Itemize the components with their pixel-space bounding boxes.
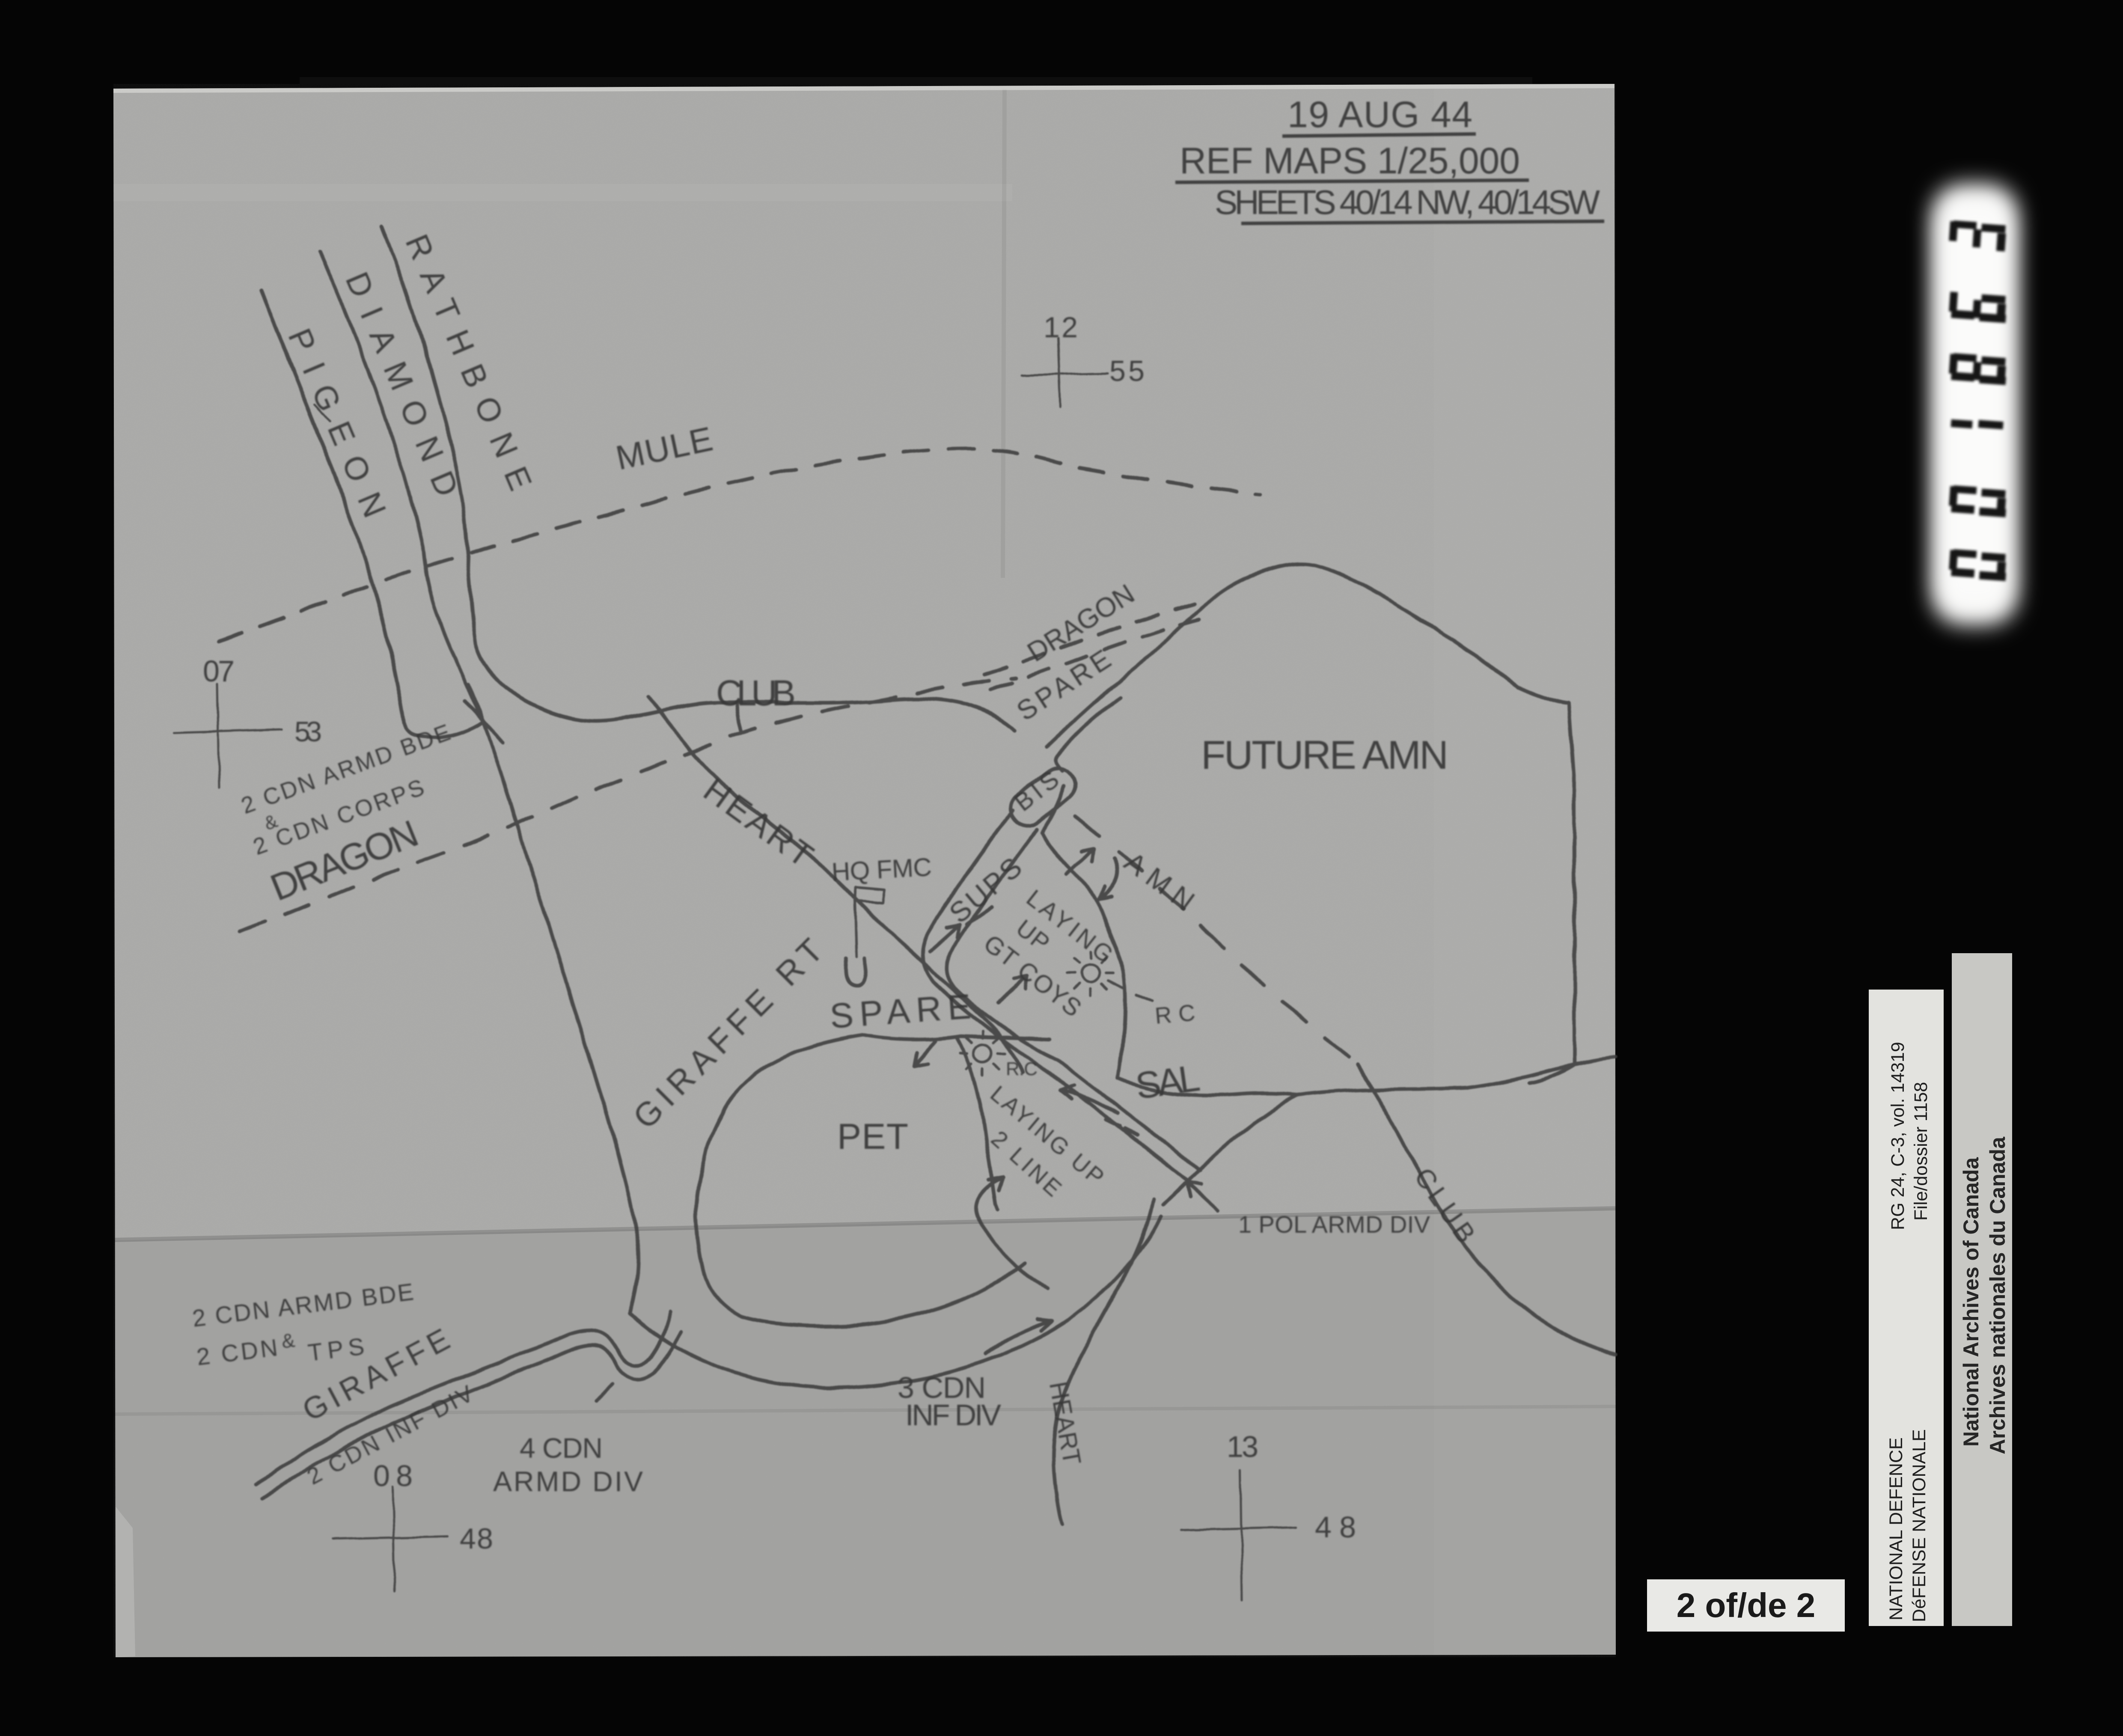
svg-text:&: &: [280, 1329, 296, 1353]
svg-text:PET: PET: [837, 1116, 908, 1156]
svg-text:HQ FMC: HQ FMC: [831, 853, 932, 886]
svg-text:DéFENSE NATIONALE: DéFENSE NATIONALE: [1909, 1429, 1930, 1622]
svg-text:4 CDN: 4 CDN: [520, 1432, 603, 1464]
svg-text:SHEETS 40/14 NW, 40/14SW: SHEETS 40/14 NW, 40/14SW: [1215, 183, 1600, 221]
svg-text:INF DIV: INF DIV: [905, 1398, 1001, 1432]
svg-text:R.C: R.C: [1006, 1058, 1038, 1079]
svg-text:07: 07: [203, 654, 235, 688]
svg-text:SAL: SAL: [1133, 1056, 1202, 1107]
svg-text:53: 53: [294, 716, 322, 747]
svg-text:CLUB: CLUB: [716, 673, 796, 713]
svg-text:1 POL ARMD DIV: 1 POL ARMD DIV: [1238, 1211, 1430, 1238]
svg-text:FUTURE AMN: FUTURE AMN: [1201, 732, 1448, 777]
svg-text:19 AUG 44: 19 AUG 44: [1287, 94, 1472, 135]
svg-text:R C: R C: [1154, 1000, 1196, 1029]
svg-text:NATIONAL DEFENCE: NATIONAL DEFENCE: [1886, 1437, 1906, 1620]
svg-text:ARMD DIV: ARMD DIV: [493, 1465, 643, 1497]
svg-text:13: 13: [1227, 1430, 1258, 1463]
svg-text:RG 24, C-3, vol. 14319: RG 24, C-3, vol. 14319: [1888, 1042, 1908, 1230]
svg-text:2 of/de 2: 2 of/de 2: [1677, 1586, 1816, 1624]
svg-text:National Archives of Canada: National Archives of Canada: [1959, 1157, 1983, 1447]
svg-text:REF MAPS 1/25,000: REF MAPS 1/25,000: [1180, 140, 1520, 181]
svg-text:File/dossier 1158: File/dossier 1158: [1911, 1082, 1931, 1221]
svg-text:Archives nationales du Canada: Archives nationales du Canada: [1986, 1136, 2010, 1454]
